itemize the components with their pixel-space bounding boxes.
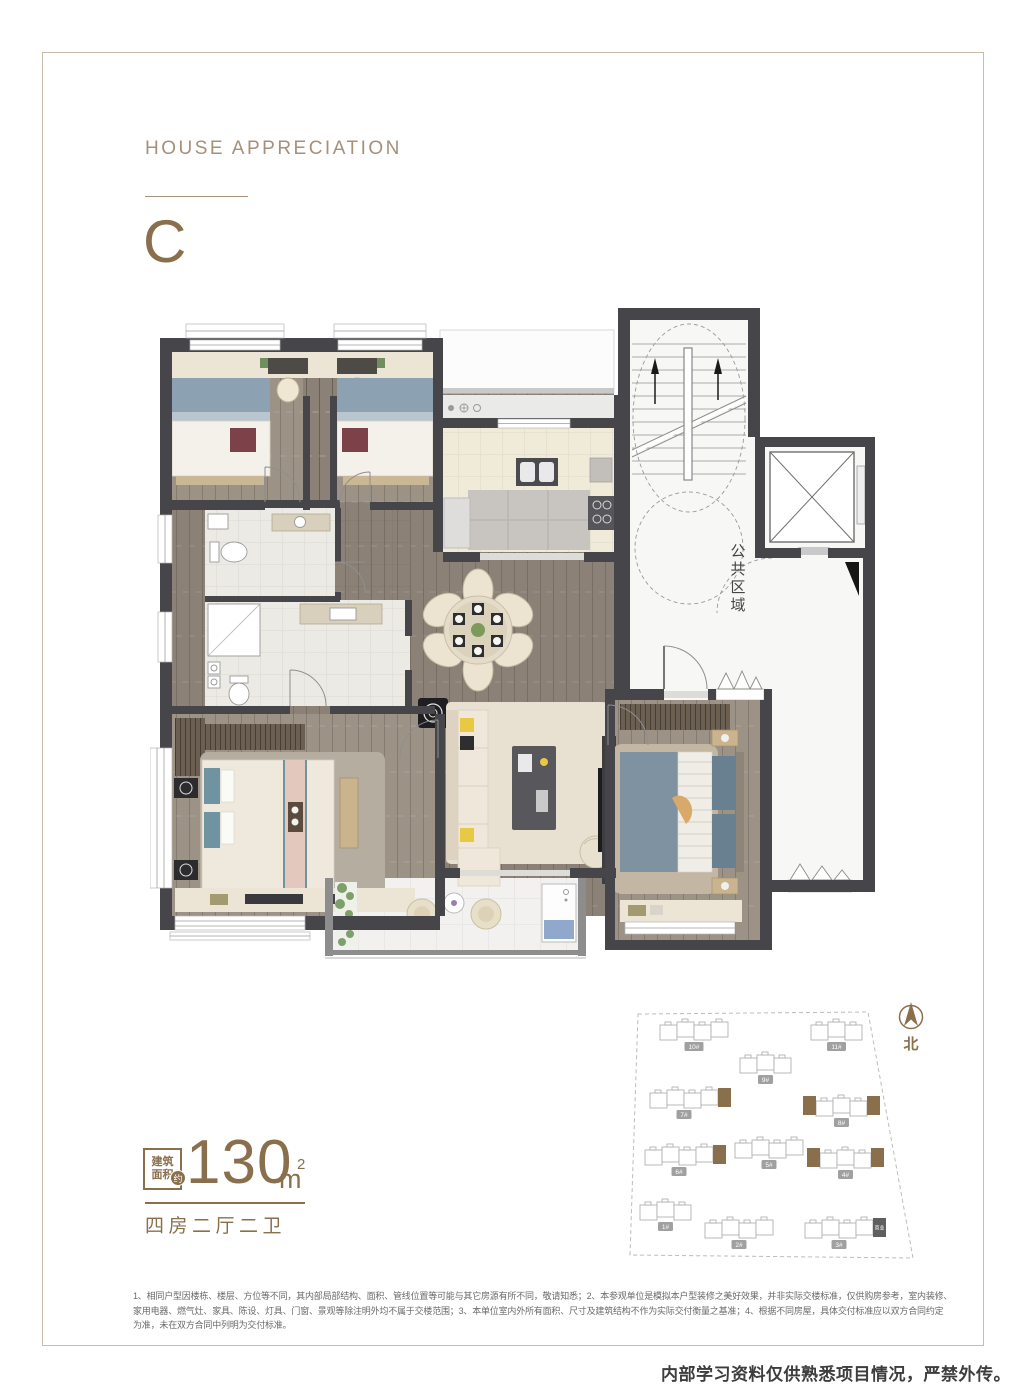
floorplan-svg: 公共区域 (150, 300, 875, 975)
siteplan-buildings: 10#11#9#7#8#6#5#4#1#2#商业3# (640, 1019, 886, 1249)
siteplan-building: 4# (807, 1147, 884, 1179)
elevator (770, 452, 865, 555)
north-indicator: 北 (893, 1002, 933, 1058)
svg-text:9#: 9# (762, 1077, 770, 1084)
svg-text:7#: 7# (680, 1112, 688, 1119)
siteplan-building: 6# (645, 1144, 726, 1176)
siteplan-building: 9# (740, 1052, 791, 1084)
siteplan-building: 11# (811, 1019, 862, 1051)
floorplan: 公共区域 (150, 300, 875, 975)
page-title: HOUSE APPRECIATION (145, 138, 402, 160)
public-area-label: 公共区域 (729, 543, 746, 615)
brochure-page: HOUSE APPRECIATION C (0, 0, 1027, 1400)
svg-text:3#: 3# (835, 1242, 843, 1249)
disclaimer-line-1: 1、相同户型因楼栋、楼层、方位等不同，其内部局部结构、面积、管线位置等可能与其它… (133, 1289, 923, 1304)
siteplan-svg: 10#11#9#7#8#6#5#4#1#2#商业3# (620, 1000, 940, 1275)
area-unit-sup: 2 (297, 1156, 305, 1173)
disclaimer: 1、相同户型因楼栋、楼层、方位等不同，其内部局部结构、面积、管线位置等可能与其它… (133, 1289, 923, 1333)
svg-text:2#: 2# (735, 1242, 743, 1249)
svg-text:6#: 6# (675, 1169, 683, 1176)
title-divider (145, 196, 248, 197)
svg-text:商业: 商业 (874, 1225, 884, 1232)
svg-text:4#: 4# (842, 1172, 850, 1179)
siteplan-building: 5# (735, 1137, 803, 1169)
svg-text:1#: 1# (662, 1224, 670, 1231)
layout-description: 四房二厅二卫 (145, 1211, 286, 1238)
siteplan-building: 1# (640, 1199, 691, 1231)
siteplan-building: 8# (803, 1095, 880, 1127)
area-label-line1: 建筑 (145, 1156, 180, 1169)
svg-text:11#: 11# (831, 1044, 842, 1051)
disclaimer-line-2: 家用电器、燃气灶、家具、陈设、灯具、门窗、景观等除注明外均不属于交楼范围；3、本… (133, 1304, 923, 1319)
siteplan-building: 商业3# (805, 1217, 886, 1249)
siteplan-building: 10# (660, 1019, 728, 1051)
north-label: 北 (903, 1036, 918, 1053)
svg-text:10#: 10# (689, 1044, 700, 1051)
approx-badge: 约 (170, 1170, 186, 1186)
confidentiality-notice: 内部学习资料仅供熟悉项目情况，严禁外传。 (661, 1360, 1011, 1385)
siteplan-building: 2# (705, 1217, 773, 1249)
area-divider (145, 1202, 305, 1204)
siteplan-building: 7# (650, 1087, 731, 1119)
north-arrow-icon: 北 (893, 1002, 933, 1058)
area-value: 130 (186, 1132, 292, 1194)
siteplan: 10#11#9#7#8#6#5#4#1#2#商业3# (620, 1000, 940, 1275)
unit-letter: C (143, 212, 186, 272)
svg-text:8#: 8# (838, 1120, 846, 1127)
disclaimer-line-3: 为准，未在双方合同中列明为交付标准。 (133, 1318, 923, 1333)
living-room (418, 698, 616, 886)
svg-text:5#: 5# (765, 1162, 773, 1169)
